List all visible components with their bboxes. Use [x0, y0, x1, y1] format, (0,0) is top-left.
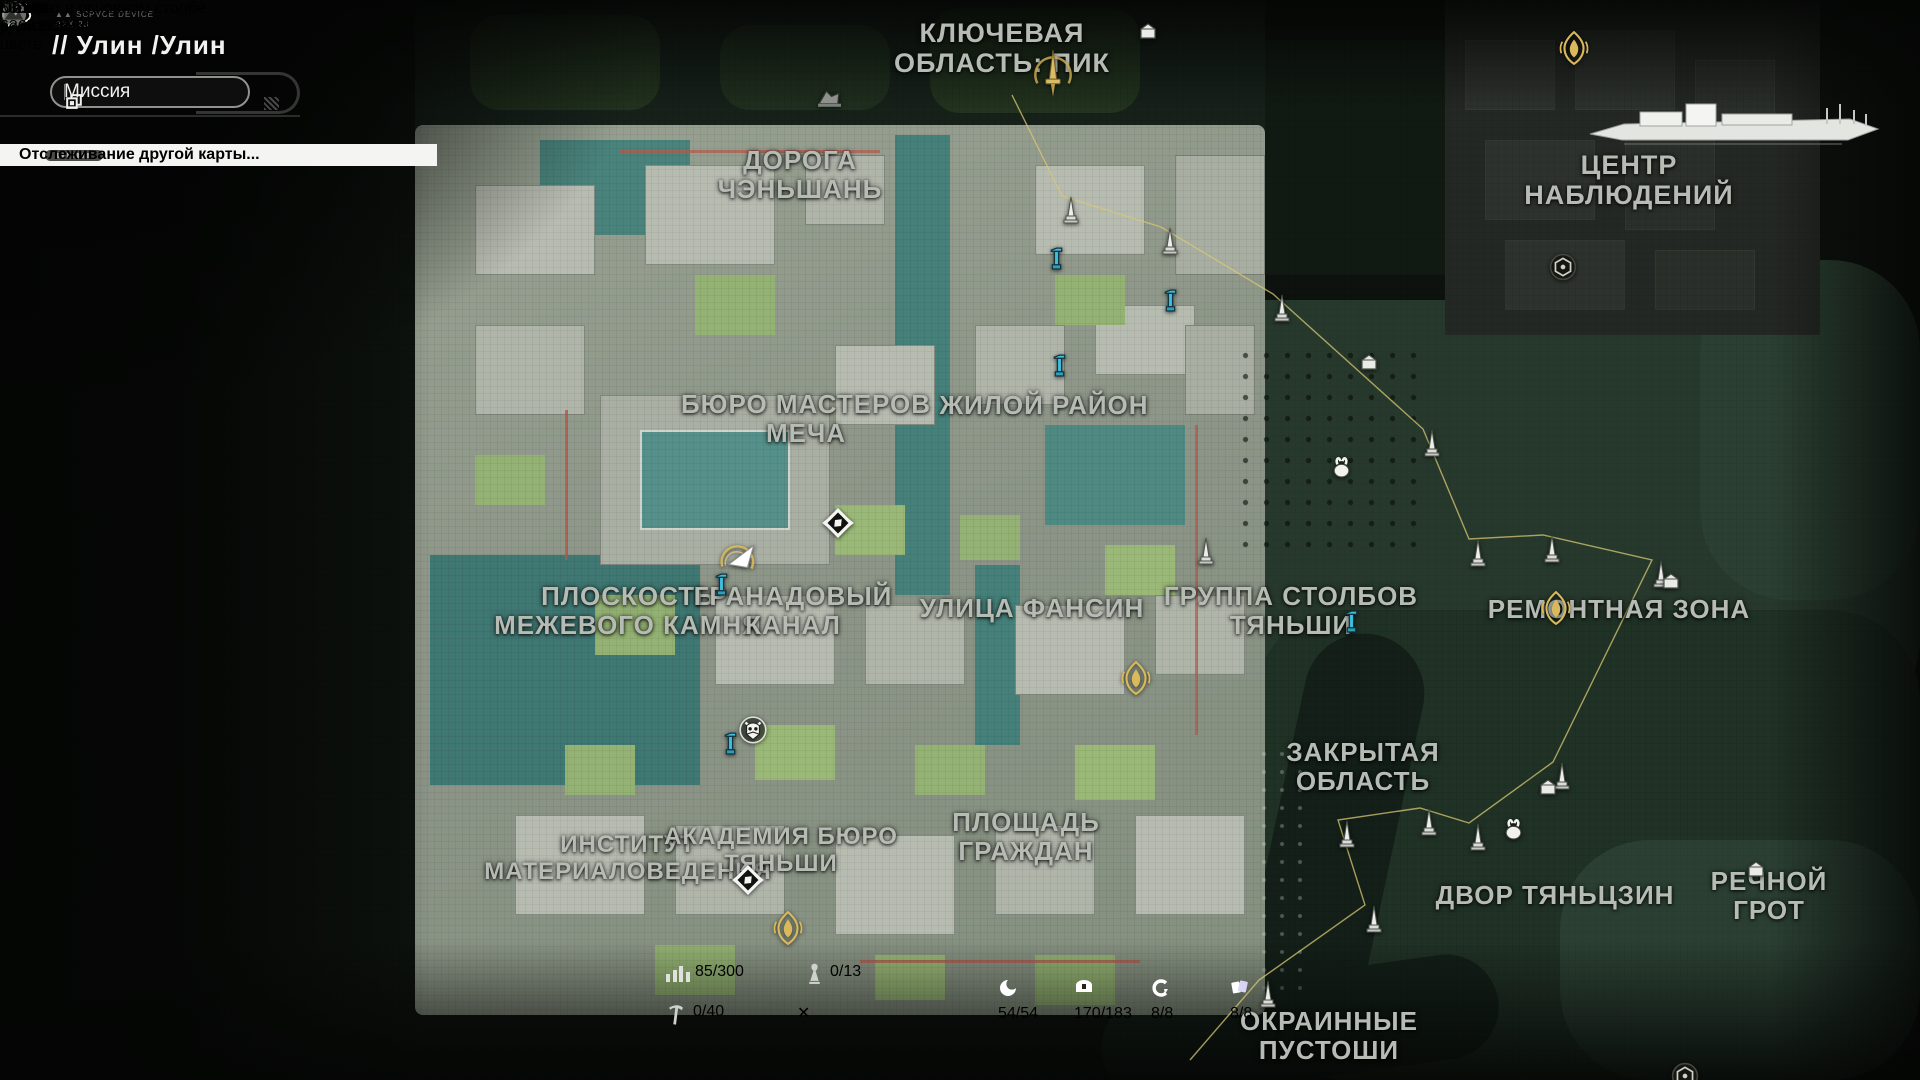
region-overview-label: Обзор регионов — [0, 0, 68, 36]
mission-button[interactable]: Миссия — [50, 76, 250, 108]
node-stat: 0/40 — [693, 1003, 790, 1021]
ship-dijiang[interactable] — [1582, 94, 1882, 158]
hud-decoration — [264, 97, 279, 110]
notification-banner: Отслеживание другой карты... — [0, 144, 437, 166]
world-map-screen: КЛЮЧЕВАЯ ОБЛАСТЬ: ПИКДОРОГА ЧЭНЬШАНЬЦЕНТ… — [0, 0, 1920, 1080]
exploration-stat: 85/300 — [695, 963, 790, 981]
banner-text: Отслеживание другой карты... — [19, 146, 260, 164]
statue-stat: 0/13 — [830, 963, 928, 981]
hud-decoration — [0, 1042, 7, 1045]
hud-decoration — [0, 115, 300, 117]
hud-decoration — [0, 1050, 7, 1060]
bar-chart-icon — [666, 966, 690, 982]
